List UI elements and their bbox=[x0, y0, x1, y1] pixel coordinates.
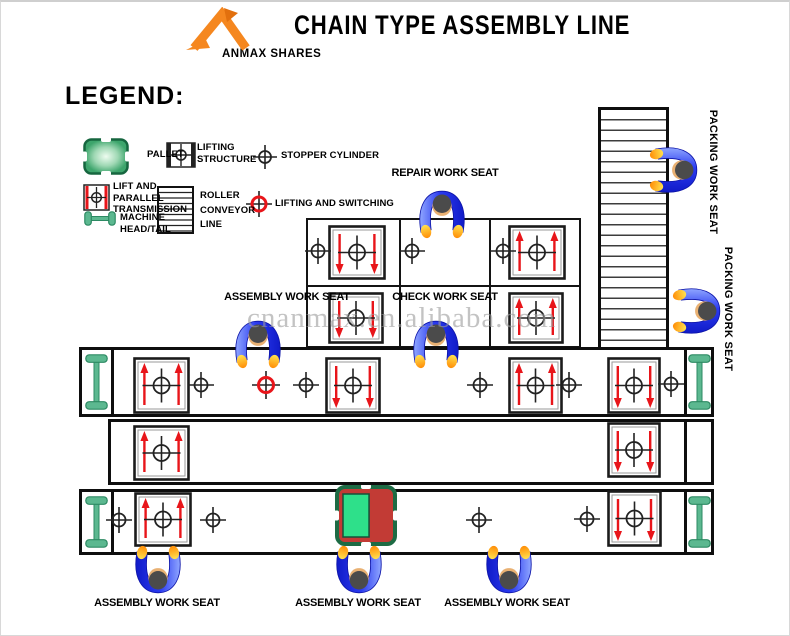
pallet-up-symbol bbox=[133, 357, 190, 414]
lift-parallel-transmission-icon bbox=[83, 184, 110, 211]
assembly-work-seat-bottom-2-label: ASSEMBLY WORK SEAT bbox=[295, 597, 421, 609]
band-divider bbox=[111, 350, 114, 414]
legend-lift-parallel-label: LIFT AND PARALLEL TRANSMISSION bbox=[113, 181, 187, 216]
repair-work-seat-label: REPAIR WORK SEAT bbox=[391, 167, 498, 179]
pallet-down-symbol bbox=[607, 422, 661, 478]
machine-head-tail-symbol bbox=[688, 496, 711, 548]
legend-pallet-label: PALLET bbox=[147, 149, 184, 161]
legend-stopper-cylinder-label: STOPPER CYLINDER bbox=[281, 150, 379, 162]
stopper-cylinder-symbol bbox=[399, 238, 425, 264]
page-title: CHAIN TYPE ASSEMBLY LINE bbox=[294, 10, 630, 41]
pallet-up-symbol bbox=[508, 225, 566, 280]
pallet-up-symbol bbox=[133, 425, 190, 481]
machine-head-tail-symbol bbox=[85, 496, 108, 548]
machine-head-tail-icon bbox=[84, 211, 116, 226]
worker-assembly-bottom-3 bbox=[480, 545, 538, 597]
band-divider bbox=[684, 492, 687, 552]
machine-head-tail-symbol bbox=[85, 354, 108, 410]
stopper-cylinder-symbol bbox=[106, 507, 132, 533]
stopper-cylinder-icon bbox=[253, 145, 277, 169]
pallet-down-symbol bbox=[325, 357, 381, 414]
machine-head-tail-symbol bbox=[688, 354, 711, 410]
worker-packing-2 bbox=[672, 282, 724, 340]
worker-repair bbox=[413, 187, 471, 239]
stopper-cylinder-symbol bbox=[574, 506, 600, 532]
stopper-cylinder-symbol bbox=[658, 371, 684, 397]
assembly-work-seat-bottom-1-label: ASSEMBLY WORK SEAT bbox=[94, 597, 220, 609]
worker-assembly-bottom-1 bbox=[129, 545, 187, 597]
assembly-work-seat-bottom-3-label: ASSEMBLY WORK SEAT bbox=[444, 597, 570, 609]
legend-heading: LEGEND: bbox=[65, 82, 185, 111]
legend-machine-head-tail-label: MACHINE HEAD/TAIL bbox=[120, 212, 171, 236]
stopper-cylinder-symbol bbox=[293, 372, 319, 398]
pallet-up-symbol bbox=[134, 492, 192, 547]
legend-lifting-switching-label: LIFTING AND SWITCHING bbox=[275, 198, 394, 210]
anmax-logo-icon bbox=[184, 7, 256, 56]
pallet-down-symbol bbox=[328, 225, 386, 280]
pallet-icon bbox=[83, 138, 129, 175]
switch-pallet-symbol bbox=[335, 485, 397, 546]
band-divider bbox=[684, 422, 687, 482]
legend-roller-conveyor-label: ROLLER CONVEYOR LINE bbox=[200, 189, 255, 233]
worker-packing-1 bbox=[649, 141, 701, 199]
assembly-line-diagram: ANMAX SHARES CHAIN TYPE ASSEMBLY LINE LE… bbox=[0, 0, 790, 636]
pallet-down-symbol bbox=[607, 490, 662, 547]
stopper-cylinder-symbol bbox=[556, 372, 582, 398]
stopper-cylinder-symbol bbox=[305, 238, 331, 264]
band-divider bbox=[684, 350, 687, 414]
stopper-cylinder-symbol bbox=[200, 507, 226, 533]
worker-assembly-bottom-2 bbox=[330, 545, 388, 597]
grid-divider bbox=[308, 285, 579, 287]
stopper-cylinder-symbol bbox=[466, 507, 492, 533]
watermark: cnanmax.en.alibaba.com bbox=[247, 302, 556, 335]
lifting-switching-symbol bbox=[252, 371, 280, 399]
stopper-cylinder-symbol bbox=[467, 372, 493, 398]
packing-work-seat-1-label: PACKING WORK SEAT bbox=[707, 110, 719, 234]
pallet-down-symbol bbox=[607, 357, 661, 414]
stopper-cylinder-symbol bbox=[490, 238, 516, 264]
pallet-up-symbol bbox=[508, 357, 563, 414]
legend-lifting-structure-label: LIFTING STRUCTURE bbox=[197, 142, 256, 166]
stopper-cylinder-symbol bbox=[188, 372, 214, 398]
